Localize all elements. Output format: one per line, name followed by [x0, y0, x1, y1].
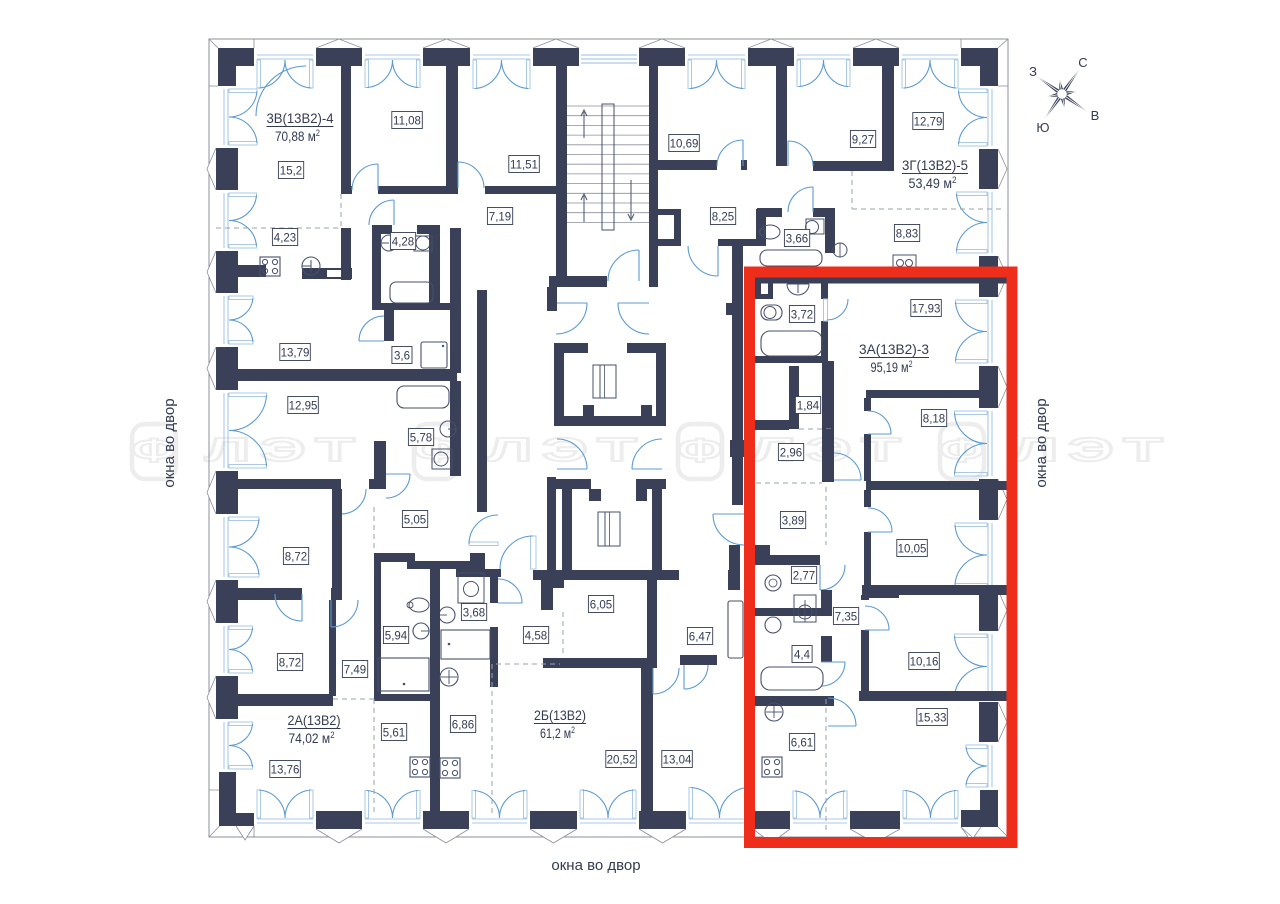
svg-text:4,58: 4,58: [525, 630, 547, 642]
svg-text:6,47: 6,47: [689, 631, 711, 643]
svg-text:2,77: 2,77: [793, 570, 815, 582]
svg-text:2Б(13В2): 2Б(13В2): [534, 707, 586, 723]
svg-text:Ю: Ю: [1036, 120, 1049, 135]
svg-text:В: В: [1091, 108, 1100, 123]
svg-text:окна во двор: окна во двор: [551, 857, 640, 874]
svg-text:3В(13В2)-4: 3В(13В2)-4: [267, 110, 334, 126]
svg-text:53,49 м2: 53,49 м2: [909, 175, 957, 191]
svg-text:7,49: 7,49: [344, 664, 366, 676]
svg-text:7,35: 7,35: [835, 611, 857, 623]
svg-text:6,05: 6,05: [590, 599, 612, 611]
svg-text:1,84: 1,84: [797, 400, 820, 412]
svg-text:74,02 м2: 74,02 м2: [289, 730, 335, 746]
svg-text:окна во двор: окна во двор: [161, 398, 178, 487]
svg-text:3,89: 3,89: [782, 515, 804, 527]
svg-text:8,72: 8,72: [285, 551, 307, 563]
svg-text:9,27: 9,27: [852, 134, 874, 146]
svg-text:13,79: 13,79: [281, 347, 310, 359]
svg-text:95,19 м2: 95,19 м2: [871, 359, 913, 375]
svg-text:3,6: 3,6: [394, 350, 410, 362]
svg-text:15,2: 15,2: [280, 165, 302, 177]
svg-text:ЛЭТ: ЛЭТ: [487, 431, 646, 468]
svg-text:15,33: 15,33: [918, 712, 947, 724]
svg-text:Ф: Ф: [940, 432, 985, 470]
svg-text:13,76: 13,76: [271, 764, 300, 776]
svg-text:8,18: 8,18: [923, 413, 945, 425]
svg-text:4,28: 4,28: [392, 236, 414, 248]
svg-text:6,86: 6,86: [452, 719, 474, 731]
svg-text:11,08: 11,08: [393, 115, 421, 127]
svg-text:7,19: 7,19: [489, 211, 511, 223]
svg-text:11,51: 11,51: [510, 159, 538, 171]
svg-text:5,78: 5,78: [410, 432, 432, 444]
svg-text:3Г(13В2)-5: 3Г(13В2)-5: [902, 157, 968, 173]
svg-text:6,61: 6,61: [791, 737, 813, 749]
svg-text:5,94: 5,94: [385, 630, 408, 642]
svg-text:8,83: 8,83: [896, 228, 918, 240]
svg-text:3,66: 3,66: [786, 233, 808, 245]
svg-text:12,79: 12,79: [914, 116, 943, 128]
svg-text:З: З: [1029, 64, 1037, 79]
svg-text:20,52: 20,52: [607, 754, 636, 766]
svg-text:61,2 м2: 61,2 м2: [540, 725, 575, 741]
svg-text:10,05: 10,05: [898, 543, 927, 555]
svg-text:Ф: Ф: [678, 432, 723, 470]
svg-text:ЛЭТ: ЛЭТ: [205, 431, 364, 468]
svg-text:4,23: 4,23: [274, 232, 296, 244]
svg-text:5,05: 5,05: [404, 514, 426, 526]
svg-text:2А(13В2): 2А(13В2): [288, 712, 341, 728]
svg-text:13,04: 13,04: [663, 754, 692, 766]
svg-text:4,4: 4,4: [794, 649, 811, 661]
svg-text:17,93: 17,93: [912, 303, 941, 315]
svg-text:3,68: 3,68: [463, 607, 485, 619]
svg-text:2,96: 2,96: [780, 447, 802, 459]
svg-text:8,72: 8,72: [279, 657, 301, 669]
svg-text:3,72: 3,72: [791, 309, 813, 321]
svg-text:10,16: 10,16: [910, 656, 939, 668]
svg-text:8,25: 8,25: [712, 211, 734, 223]
svg-text:5,61: 5,61: [383, 727, 405, 739]
svg-text:3А(13В2)-3: 3А(13В2)-3: [859, 341, 929, 357]
svg-text:С: С: [1078, 55, 1087, 70]
svg-text:12,95: 12,95: [289, 400, 318, 412]
svg-text:10,69: 10,69: [670, 138, 699, 150]
svg-text:окна во двор: окна во двор: [1033, 398, 1050, 487]
svg-text:70,88 м2: 70,88 м2: [275, 128, 320, 144]
